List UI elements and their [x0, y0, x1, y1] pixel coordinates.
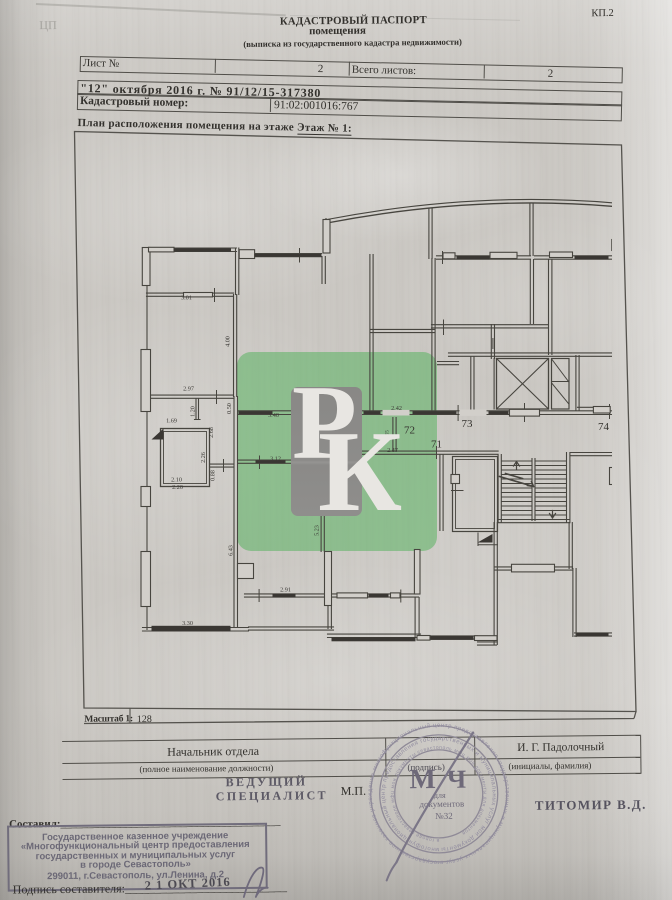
svg-text:№32: №32: [435, 811, 453, 821]
svg-text:М: М: [409, 764, 436, 795]
